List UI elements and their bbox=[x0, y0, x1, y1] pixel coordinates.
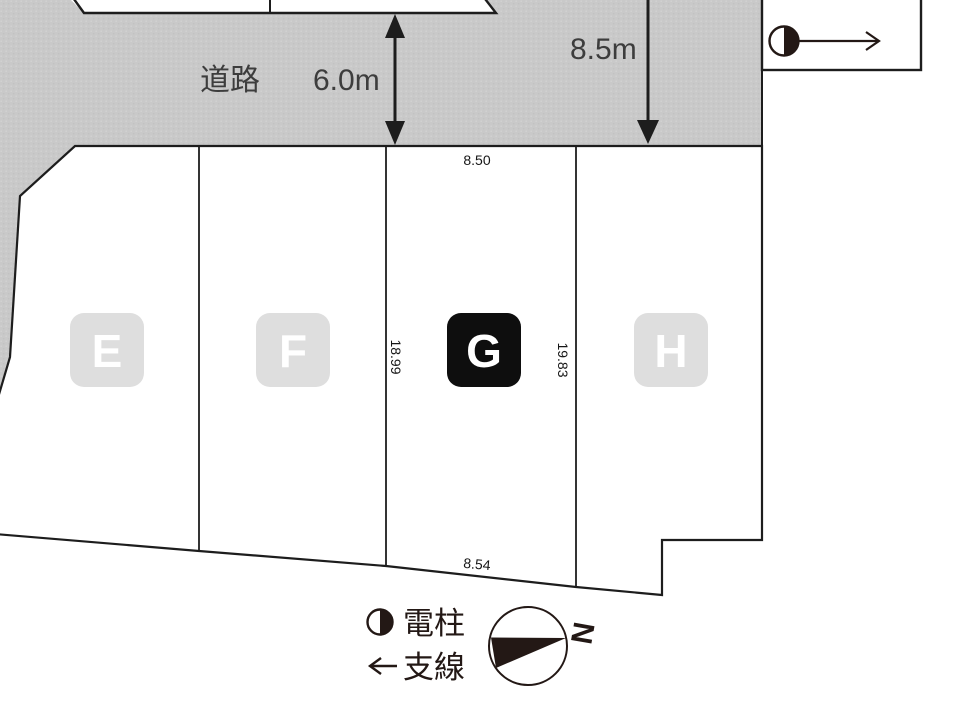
road-label: 道路 bbox=[200, 64, 260, 97]
lot-badge-h: H bbox=[634, 313, 708, 387]
legend-pole-label: 電柱 bbox=[403, 606, 465, 641]
compass-north-label: N bbox=[564, 619, 600, 646]
arrow-left-icon bbox=[370, 658, 397, 674]
lot-badge-g-highlighted: G bbox=[447, 313, 521, 387]
utility-pole-icon bbox=[770, 27, 799, 56]
lot-badge-e-label: E bbox=[92, 325, 123, 377]
lot-badge-h-label: H bbox=[654, 325, 687, 377]
legend: 電柱 支線 bbox=[368, 606, 466, 685]
compass: N bbox=[489, 607, 600, 685]
utility-pole-legend-icon bbox=[368, 610, 393, 635]
lot-badge-f-label: F bbox=[279, 325, 307, 377]
dim-top: 8.50 bbox=[463, 152, 490, 168]
dim-left-side: 18.99 bbox=[388, 339, 404, 374]
dim-bottom: 8.54 bbox=[463, 555, 492, 573]
lot-badge-e: E bbox=[70, 313, 144, 387]
dim-right-side: 19.83 bbox=[555, 342, 571, 377]
legend-guy-wire-label: 支線 bbox=[403, 650, 465, 685]
road-width-label: 6.0m bbox=[313, 64, 380, 97]
plot-diagram: 道路 6.0m 8.5m 8.50 18.99 19.83 8.54 E F G… bbox=[0, 0, 960, 720]
far-side-parcels bbox=[71, 0, 496, 13]
lot-badge-f: F bbox=[256, 313, 330, 387]
lot-badge-g-label: G bbox=[466, 325, 502, 377]
plot-diagram-canvas: 道路 6.0m 8.5m 8.50 18.99 19.83 8.54 E F G… bbox=[0, 0, 960, 720]
frontage-label: 8.5m bbox=[570, 33, 637, 66]
